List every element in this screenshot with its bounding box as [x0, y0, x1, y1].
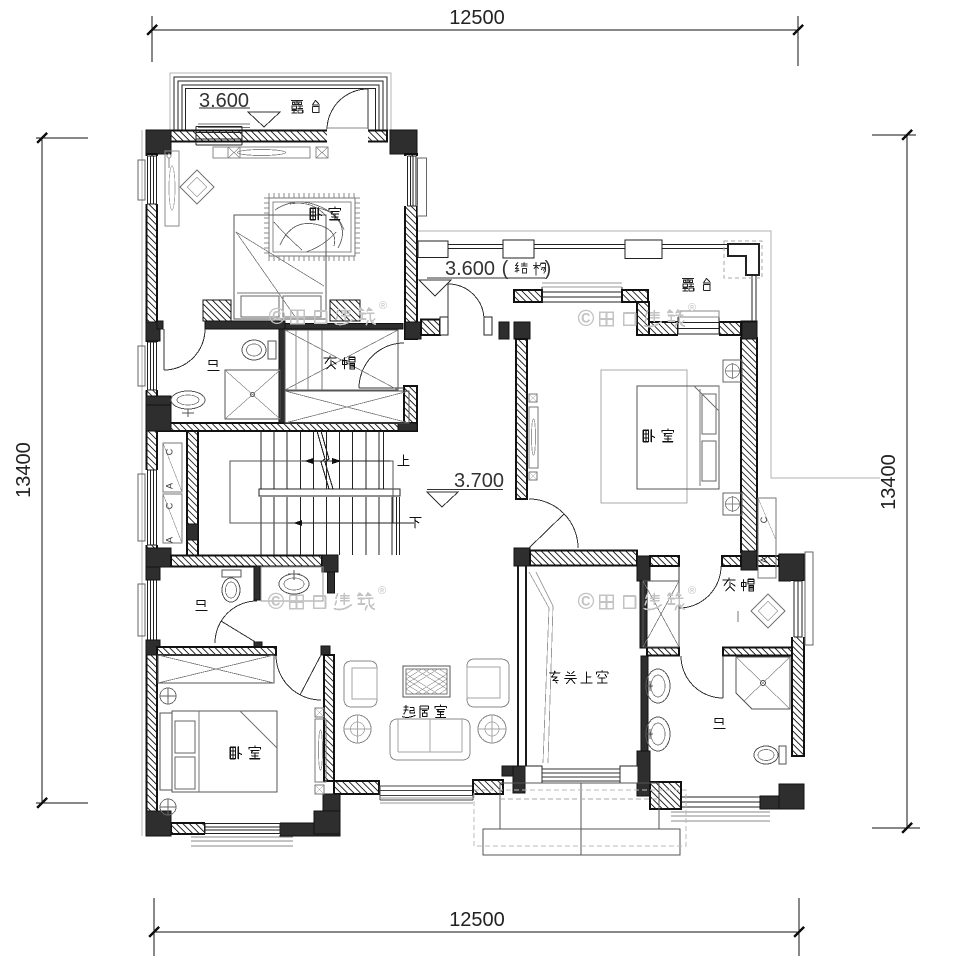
svg-text:C: C [165, 448, 175, 455]
svg-text:C: C [759, 516, 769, 523]
svg-text:): ) [545, 258, 552, 280]
svg-text:13400: 13400 [13, 442, 35, 498]
svg-text:®: ® [378, 585, 386, 597]
svg-text:C: C [165, 502, 175, 509]
svg-text:®: ® [688, 302, 696, 314]
svg-text:12500: 12500 [449, 7, 505, 29]
svg-text:®: ® [379, 300, 387, 312]
svg-text:©: © [268, 588, 285, 614]
svg-text:A: A [165, 483, 175, 489]
svg-text:©: © [578, 305, 595, 331]
svg-text:3.600: 3.600 [445, 258, 495, 280]
svg-text:©: © [578, 588, 595, 614]
svg-text:©: © [269, 303, 286, 329]
svg-text:3.600: 3.600 [199, 90, 249, 112]
svg-text:13400: 13400 [878, 454, 900, 510]
svg-text:A: A [165, 537, 175, 543]
svg-text:12500: 12500 [449, 909, 505, 931]
svg-text:(: ( [502, 258, 509, 280]
svg-text:®: ® [688, 585, 696, 597]
svg-text:A: A [759, 557, 769, 563]
svg-text:3.700: 3.700 [454, 470, 504, 492]
